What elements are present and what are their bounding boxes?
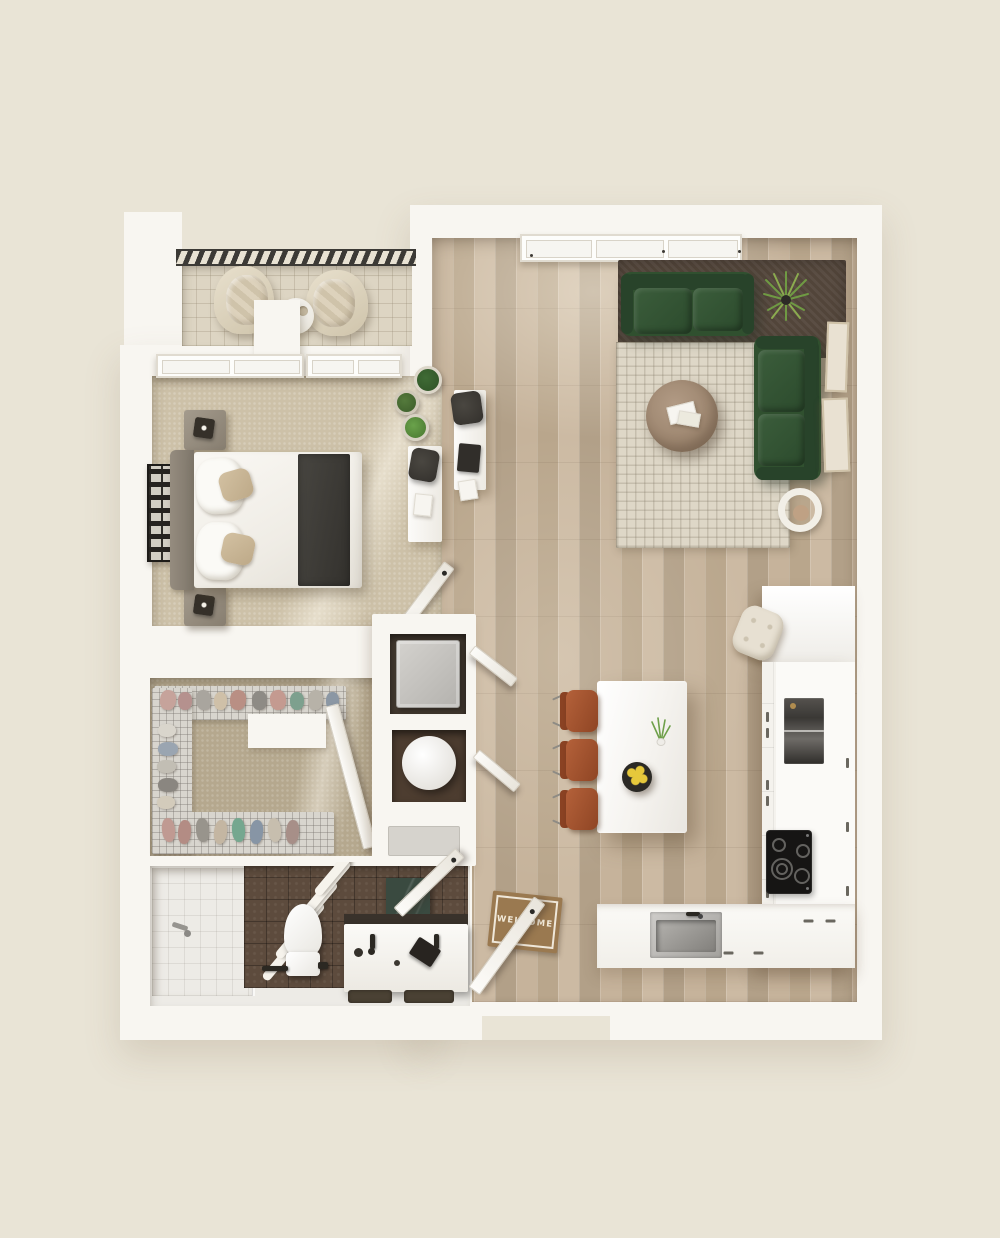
window-pane [596, 240, 664, 258]
window-latch [662, 250, 665, 253]
drawer-handle [846, 886, 849, 896]
kitchen-island [597, 681, 687, 833]
folded-clothes [157, 760, 176, 773]
cooktop-knob [806, 834, 809, 837]
oven-handle [784, 730, 824, 732]
exterior-wall-notch [482, 1016, 610, 1040]
throw-blanket [298, 454, 350, 586]
burner [776, 863, 788, 875]
burner [772, 838, 786, 852]
folded-clothes [157, 796, 175, 809]
bath-mat [404, 990, 454, 1003]
drawer-handle [754, 952, 764, 955]
drawer-handle [826, 920, 836, 923]
lamp-base [793, 505, 809, 521]
patio-chair-cushion [313, 279, 355, 327]
clothing-item [252, 691, 267, 710]
soap-dispenser [354, 948, 363, 957]
sofa-cushion [758, 414, 805, 466]
fruit-bowl-lemons [622, 762, 652, 792]
sofa-horizontal [621, 272, 754, 336]
sofa-cushion [758, 350, 805, 412]
arc-floor-lamp [778, 488, 822, 532]
bed [194, 452, 362, 588]
utility-cabinet [388, 826, 460, 856]
nightstand-bottom [184, 586, 226, 626]
clothing-item [178, 692, 192, 710]
window-pane [668, 240, 738, 258]
papers [413, 493, 433, 517]
shoe-pair [158, 778, 178, 792]
oven-knob [790, 703, 796, 709]
drawer-handle [846, 822, 849, 832]
window-pane [526, 240, 592, 258]
shoe-pair [158, 742, 178, 756]
window-pane [312, 360, 354, 374]
potted-palm-plant [760, 268, 812, 324]
bath-mat [348, 990, 392, 1003]
door-handle [529, 908, 536, 915]
drawer-handle [846, 758, 849, 768]
bar-stool [552, 688, 600, 734]
drawer-handle [724, 952, 734, 955]
cooktop [766, 830, 812, 894]
drawer-handle [804, 920, 814, 923]
nightstand-top [184, 410, 226, 450]
window-latch [530, 254, 533, 257]
window-pane [162, 360, 230, 374]
sofa-cushion [634, 288, 692, 334]
table-lamp [193, 417, 216, 440]
folded-clothes [158, 724, 176, 737]
door-handle [450, 857, 457, 864]
cabinet-handle [766, 728, 769, 738]
laptop [457, 443, 481, 473]
cabinet-handle [766, 796, 769, 806]
sofa-armrest [742, 274, 754, 334]
faucet-head [368, 948, 375, 955]
kitchen-counter-bottom [597, 904, 855, 968]
sofa-cushion [693, 288, 743, 331]
window-latch [738, 250, 741, 253]
walk-in-shower [152, 868, 252, 996]
toilet-paper-holder [262, 966, 288, 971]
bedroom-window-left [156, 354, 304, 378]
potted-plant [394, 390, 419, 415]
double-vanity [344, 924, 468, 992]
potted-plant [402, 414, 429, 441]
stacked-washer-dryer [396, 640, 460, 708]
sofa-armrest [756, 467, 818, 480]
bedroom-window-right [306, 354, 402, 378]
table-lamp [193, 594, 216, 617]
apartment-floor-plan: WELCOME [0, 0, 1000, 1238]
desk-chair [407, 447, 440, 483]
bed-headboard [170, 450, 194, 590]
wall-oven [784, 698, 824, 764]
kitchen-sink [650, 912, 722, 958]
sink-basin [656, 920, 716, 952]
cabinet-handle [766, 780, 769, 790]
water-heater [402, 736, 456, 790]
clothing-item [214, 692, 227, 710]
faucet [370, 934, 375, 949]
patio-chair-right [306, 270, 368, 336]
living-room-window [520, 234, 742, 262]
stool-seat [566, 788, 598, 830]
closet-wall-block [248, 714, 326, 748]
clothing-item [290, 692, 304, 710]
sofa-vertical [754, 336, 821, 480]
island-plant-sprig [648, 712, 674, 748]
toilet-tank [286, 952, 320, 976]
window-pane [358, 360, 400, 374]
burner [794, 868, 810, 884]
window-pane [234, 360, 300, 374]
sofa-back [804, 340, 819, 476]
desk-chair [450, 390, 484, 426]
picture-frame [825, 322, 849, 393]
cabinet-handle [766, 712, 769, 722]
cooktop-knob [806, 887, 809, 890]
potted-plant [414, 366, 442, 394]
shower-valve [184, 930, 191, 937]
faucet-head [698, 914, 703, 919]
burner [796, 844, 810, 858]
wall-balcony-stub [124, 212, 182, 348]
stool-seat [566, 690, 598, 732]
sofa-armrest [621, 274, 633, 334]
papers [458, 479, 479, 502]
stool-seat [566, 739, 598, 781]
sofa-armrest [756, 336, 818, 349]
cup [394, 960, 400, 966]
balcony-railing [176, 249, 416, 266]
picture-frame [822, 398, 851, 473]
door-handle [441, 570, 448, 577]
toilet-bowl [284, 904, 322, 958]
toilet-flush-plate [318, 962, 328, 969]
bar-stool [552, 786, 600, 832]
bar-stool [552, 737, 600, 783]
